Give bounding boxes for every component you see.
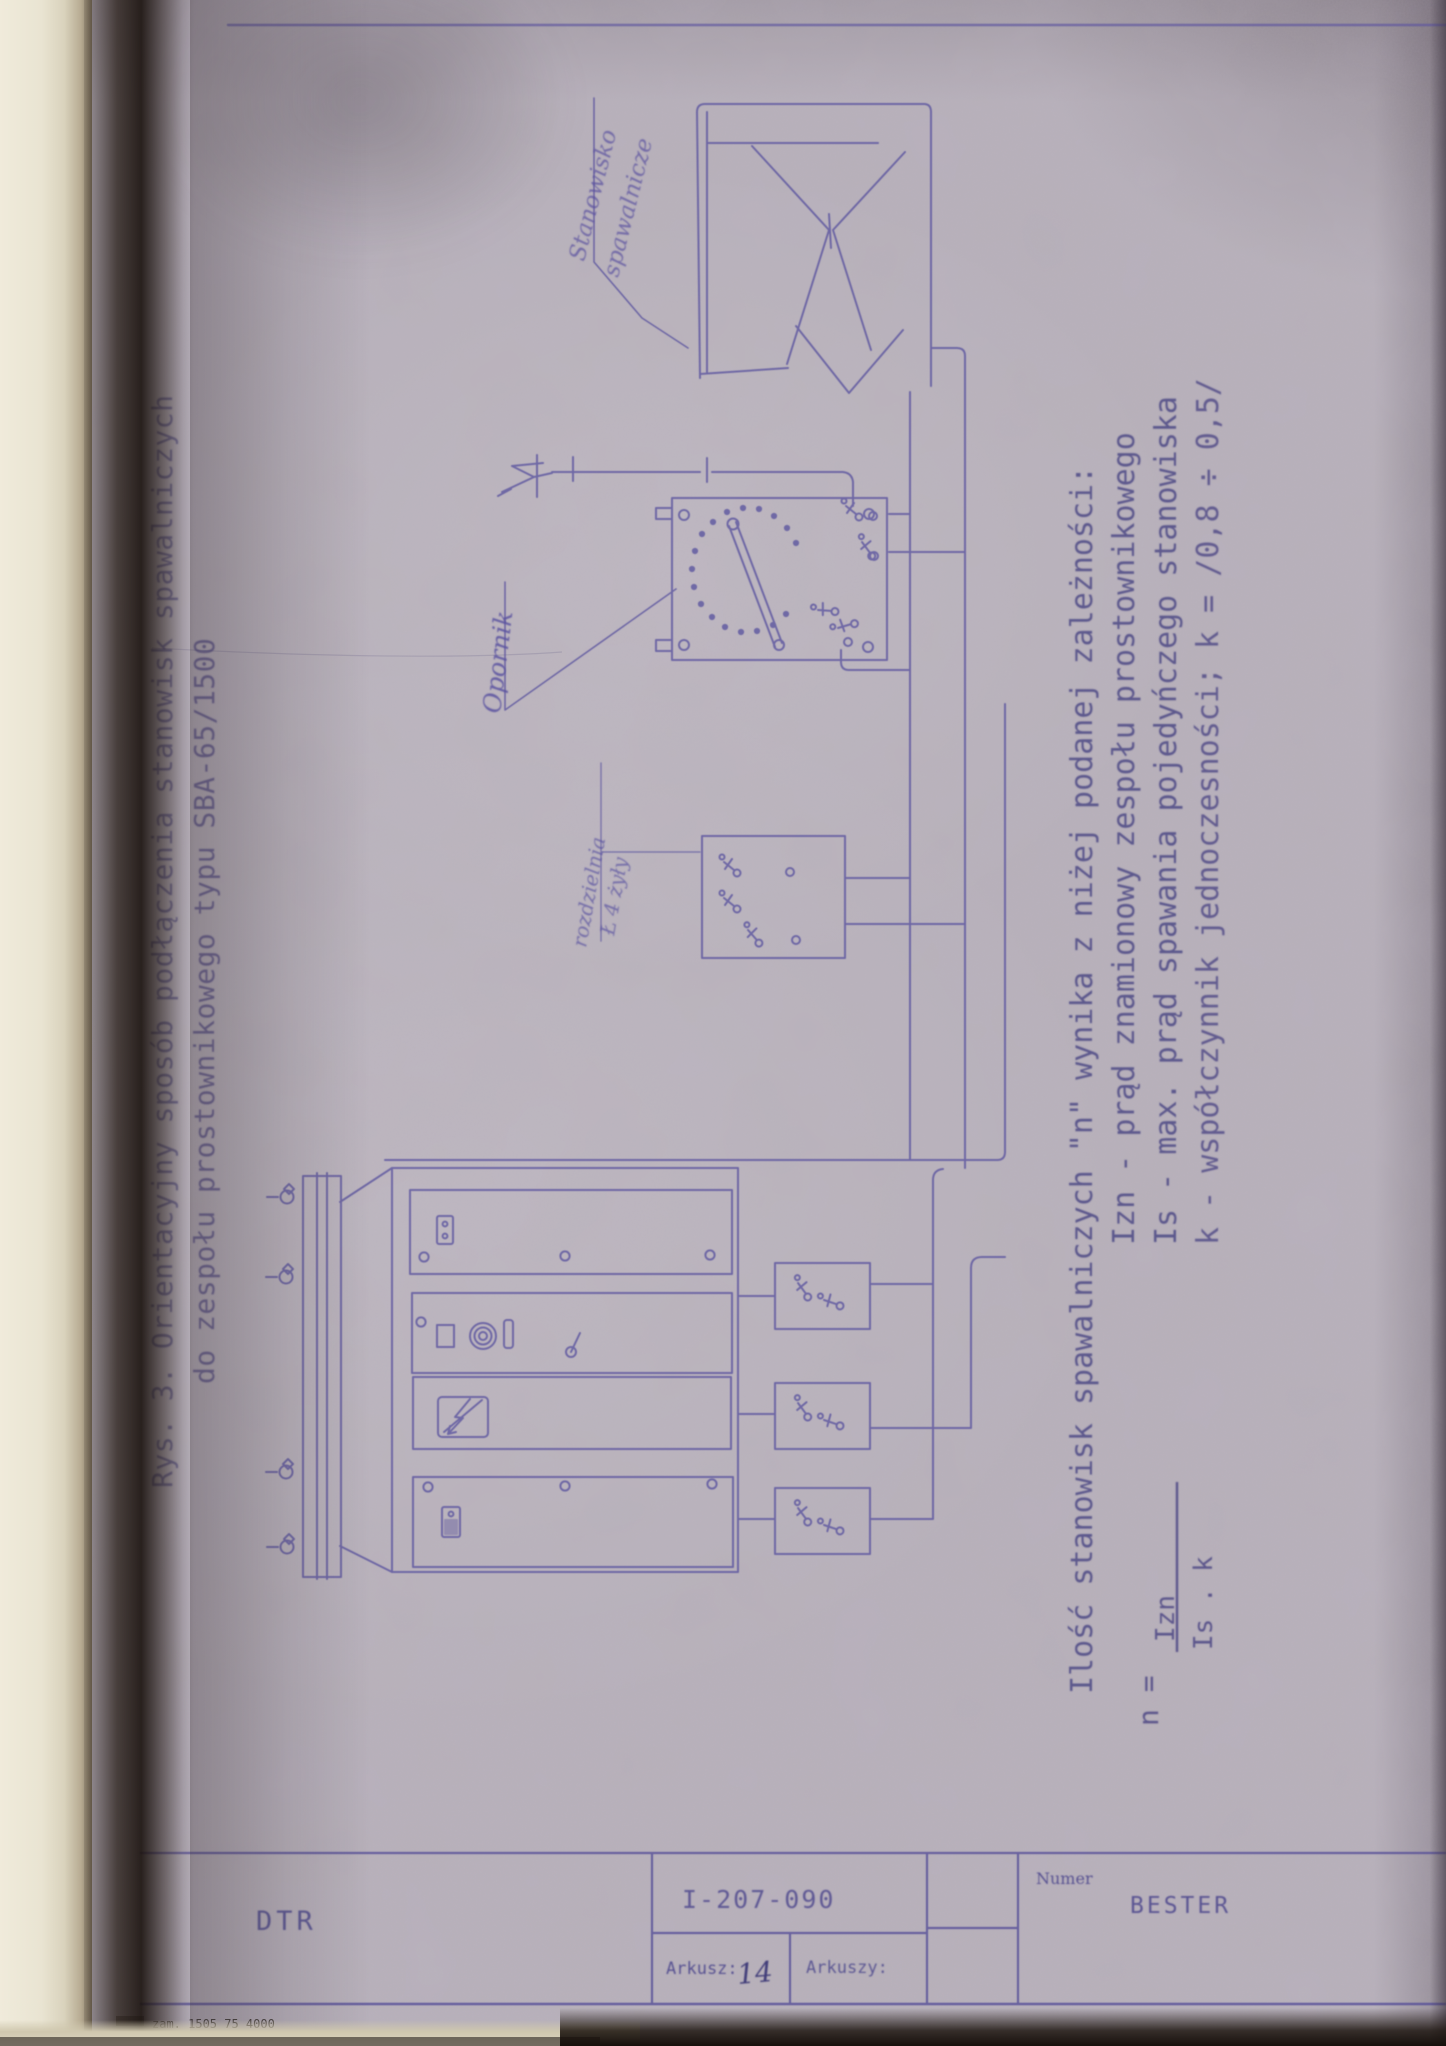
- formula-denominator: Is . k: [1189, 1556, 1219, 1650]
- numer-label: Numer: [1036, 1869, 1093, 1888]
- doc-number: I-207-090: [682, 1885, 835, 1914]
- print-note: zam. 1505 75 4000: [152, 2017, 275, 2031]
- notes-line3: Is - max. prąd spawania pojedyńczego sta…: [1149, 396, 1184, 1245]
- brand-name: BESTER: [1130, 1893, 1231, 1919]
- figure-title-line1: Rys. 3. Orientacyjny sposób podłączenia …: [146, 394, 179, 1488]
- notes-line4: k - współczynnik jednoczesności; k = /0,…: [1191, 378, 1226, 1245]
- scanned-blueprint-page: Rys. 3. Orientacyjny sposób podłączenia …: [0, 0, 1446, 2046]
- arkusz-label: Arkusz:: [666, 1959, 738, 1979]
- dtr-label: DTR: [256, 1906, 317, 1937]
- arkuszy-label: Arkuszy:: [806, 1958, 888, 1978]
- formula-lhs: n =: [1132, 1675, 1165, 1726]
- figure-title-line2: do zespołu prostownikowego typu SBA-65/1…: [188, 638, 221, 1384]
- notes-line1: Ilość stanowisk spawalniczych "n" wynika…: [1065, 466, 1100, 1694]
- print-smudge: [116, 2016, 144, 2026]
- arkusz-value: 14: [736, 1955, 774, 1991]
- drawing-svg: Rys. 3. Orientacyjny sposób podłączenia …: [0, 0, 1446, 2046]
- notes-line2: Izn - prąd znamionowy zespołu prostownik…: [1107, 432, 1142, 1245]
